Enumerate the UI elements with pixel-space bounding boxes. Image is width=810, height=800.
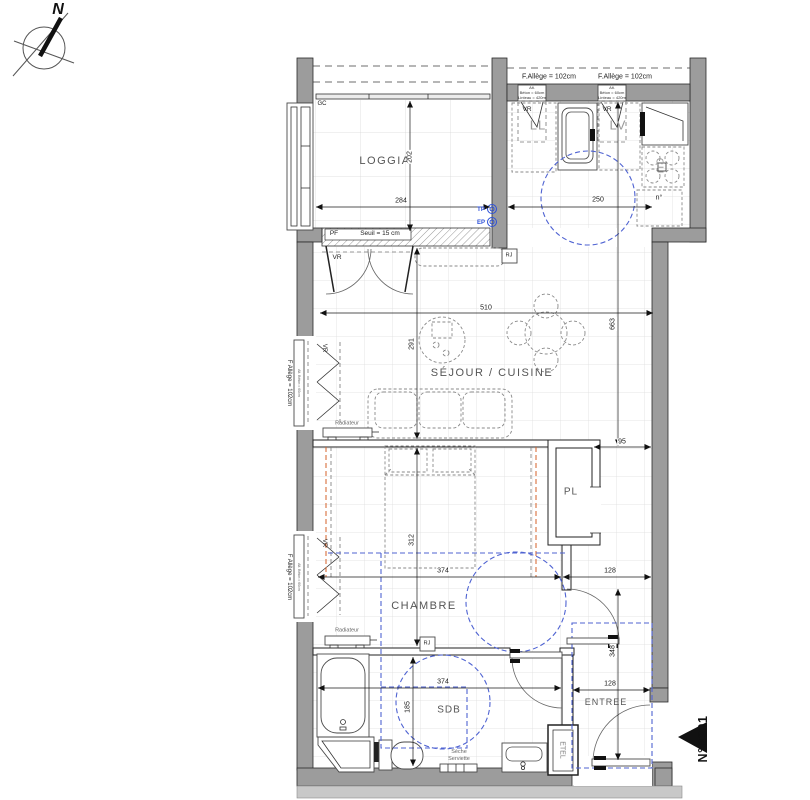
- radiateur-2: Radiateur: [335, 628, 359, 635]
- ep-label: EP: [477, 220, 485, 226]
- dim-entree-width: 128: [603, 681, 617, 688]
- fallege-side-2: F Allège = 102cm: [286, 554, 292, 601]
- window-note-side-2: Alt. Béton = 60cm: [297, 563, 301, 591]
- dim-sdb-depth: 185: [405, 700, 412, 714]
- room-loggia: LOGGIA: [359, 155, 410, 167]
- gc-label: GC: [318, 101, 327, 107]
- dim-sdb-width: 374: [436, 679, 450, 686]
- vr-cuisine-2: VR: [602, 107, 611, 114]
- floor-plan: N GC F.Allège = 102cm F.Allège = 102cm A…: [0, 0, 810, 800]
- vr-chambre-window: VR: [321, 539, 327, 547]
- pf-label: PF: [330, 231, 338, 238]
- room-entree: ENTREE: [585, 697, 628, 707]
- dim-east-depth: 663: [610, 317, 617, 331]
- dim-couloir-width: 95: [617, 439, 627, 446]
- window-note-side-1: Alt. Béton = 60cm: [297, 369, 301, 397]
- fallege-side-1: F Allège = 102cm: [286, 360, 292, 407]
- fallege-top-2: F.Allège = 102cm: [598, 74, 652, 81]
- dim-loggia-depth: 202: [407, 150, 414, 164]
- tp-label: TP: [477, 207, 485, 213]
- vr-sejour-window: VR: [321, 344, 327, 352]
- appliance-cu: CU: [654, 158, 665, 174]
- appliance-ll: LL: [530, 118, 546, 133]
- room-pl: PL: [564, 487, 578, 498]
- dim-cuisine-width: 250: [591, 197, 605, 204]
- appliance-lv: LV: [610, 118, 627, 133]
- compass-north-label: N: [52, 1, 64, 19]
- appliance-n: n°: [655, 195, 664, 202]
- dim-hall-width-upper: 128: [603, 568, 617, 575]
- room-sdb: SDB: [437, 705, 461, 716]
- rj-box-1: RJ: [506, 253, 513, 259]
- vr-cuisine-1: VR: [522, 107, 531, 114]
- room-sejour-cuisine: SÉJOUR / CUISINE: [431, 367, 553, 379]
- dim-chambre-width: 374: [436, 568, 450, 575]
- window-note-2: Alt. Béton = 60cm Linteau = 420m: [598, 86, 626, 100]
- compass-icon: [13, 13, 74, 76]
- seche-serviette-label: Sèche Serviette: [448, 749, 470, 763]
- dim-sejour-depth: 291: [409, 337, 416, 351]
- vr-loggia-door: VR: [332, 255, 341, 262]
- fallege-top-1: F.Allège = 102cm: [522, 74, 576, 81]
- rj-box-2: RJ: [424, 641, 431, 647]
- seuil-label: Seuil = 15 cm: [360, 231, 400, 238]
- floorplan-drawing: [0, 0, 810, 800]
- label-etel: ETEL: [559, 741, 566, 759]
- unit-number-label: N°B301: [696, 716, 710, 763]
- dim-loggia-width: 284: [394, 198, 408, 205]
- dim-sejour-width: 510: [479, 305, 493, 312]
- window-note-1: Alt. Béton = 60cm Linteau = 420m: [518, 86, 546, 100]
- room-chambre: CHAMBRE: [391, 600, 457, 612]
- dim-chambre-depth: 312: [409, 533, 416, 547]
- radiateur-1: Radiateur: [335, 421, 359, 428]
- dim-entree-depth: 348: [610, 644, 617, 658]
